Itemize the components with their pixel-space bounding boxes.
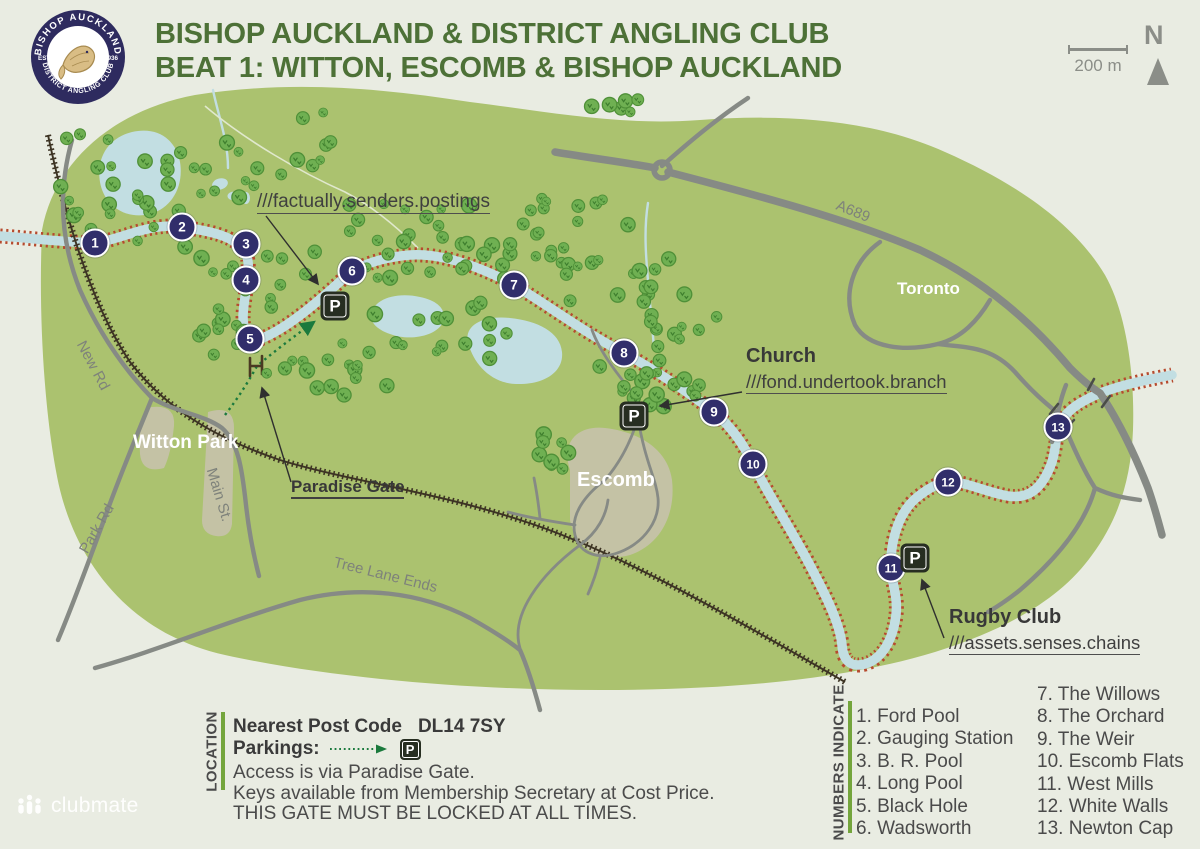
tree-icon: [275, 279, 286, 290]
tree-icon: [662, 252, 676, 266]
tree-icon: [382, 248, 394, 260]
what3words-label: ///assets.senses.chains: [949, 632, 1140, 655]
numbers-legend-title: NUMBERS INDICATE: [831, 691, 848, 841]
numbers-legend-bar: [848, 701, 852, 833]
tree-icon: [649, 264, 660, 275]
tree-icon: [474, 296, 487, 309]
page-title: BISHOP AUCKLAND & DISTRICT ANGLING CLUB …: [155, 17, 842, 85]
river-marker-13: 13: [1044, 413, 1073, 442]
tree-icon: [425, 267, 436, 278]
tree-icon: [194, 250, 209, 265]
tree-icon: [265, 301, 277, 313]
tree-icon: [637, 295, 650, 308]
tree-icon: [625, 107, 635, 117]
tree-icon: [558, 243, 568, 253]
tree-icon: [437, 232, 449, 244]
tree-icon: [74, 129, 85, 140]
legend-item: 7. The Willows: [1037, 684, 1184, 706]
river-marker-4: 4: [232, 266, 261, 295]
north-label: N: [1144, 20, 1164, 51]
tree-icon: [504, 238, 517, 251]
tree-icon: [133, 236, 143, 246]
tree-icon: [209, 268, 218, 277]
tree-icon: [573, 216, 583, 226]
legend-item: 5. Black Hole: [856, 796, 1013, 818]
tree-icon: [630, 387, 642, 399]
tree-icon: [645, 315, 658, 328]
annotation-title: Church: [746, 345, 816, 367]
tree-icon: [296, 112, 309, 125]
scale-bar: [1068, 48, 1128, 51]
tree-icon: [241, 176, 250, 185]
place-label-witton-park: Witton Park: [133, 432, 238, 454]
tree-icon: [308, 245, 321, 258]
postcode-value: DL14 7SY: [418, 716, 506, 737]
tree-icon: [210, 186, 220, 196]
tree-icon: [61, 132, 73, 144]
tree-icon: [234, 147, 243, 156]
tree-icon: [353, 361, 363, 371]
tree-icon: [653, 354, 666, 367]
tree-icon: [350, 373, 361, 384]
tree-icon: [65, 196, 74, 205]
parkings-label: Parkings:: [233, 738, 320, 760]
river-marker-10: 10: [739, 450, 768, 479]
annotation-paradise-gate: Paradise Gate: [291, 477, 404, 497]
legend-item: 10. Escomb Flats: [1037, 751, 1184, 773]
tree-icon: [459, 337, 472, 350]
tree-icon: [675, 334, 685, 344]
tree-icon: [564, 295, 576, 307]
club-logo: BISHOP AUCKLAND DISTRICT ANGLING CLUB ES…: [28, 7, 128, 107]
parking-icon: P: [321, 292, 350, 321]
tree-icon: [373, 273, 382, 282]
tree-icon: [132, 190, 143, 201]
tree-icon: [598, 195, 608, 205]
legend-item: 11. West Mills: [1037, 774, 1184, 796]
tree-icon: [319, 108, 328, 117]
tree-icon: [322, 354, 334, 366]
tree-icon: [677, 322, 686, 331]
tree-icon: [208, 349, 219, 360]
location-note-1: Access is via Paradise Gate.: [233, 762, 475, 784]
annotation-title: Paradise Gate: [291, 477, 404, 499]
tree-icon: [602, 97, 617, 112]
scale-label: 200 m: [1060, 56, 1136, 76]
tree-icon: [290, 153, 305, 168]
tree-icon: [594, 255, 603, 264]
tree-icon: [439, 311, 453, 325]
tree-icon: [413, 314, 425, 326]
tree-icon: [344, 226, 355, 237]
parking-icon: P: [620, 402, 649, 431]
tree-icon: [593, 360, 606, 373]
tree-icon: [477, 247, 491, 261]
tree-icon: [337, 388, 351, 402]
tree-icon: [459, 236, 474, 251]
tree-icon: [644, 280, 658, 294]
tree-icon: [433, 220, 444, 231]
place-label-toronto: Toronto: [897, 279, 960, 299]
tree-icon: [220, 135, 235, 150]
tree-icon: [544, 454, 559, 469]
tree-icon: [621, 218, 635, 232]
tree-icon: [338, 339, 347, 348]
place-label-escomb: Escomb: [577, 469, 655, 492]
tree-icon: [106, 177, 120, 191]
clubmate-label: clubmate: [51, 794, 139, 818]
tree-icon: [545, 250, 557, 262]
tree-icon: [531, 251, 541, 261]
tree-icon: [251, 162, 264, 175]
legend-item: 2. Gauging Station: [856, 728, 1013, 750]
tree-icon: [232, 190, 247, 205]
title-line-1: BISHOP AUCKLAND & DISTRICT ANGLING CLUB: [155, 17, 842, 51]
tree-icon: [652, 341, 664, 353]
tree-icon: [161, 177, 175, 191]
what3words-label: ///factually.senders.postings: [257, 191, 490, 214]
river-marker-3: 3: [232, 230, 261, 259]
tree-icon: [618, 94, 632, 108]
tree-icon: [557, 438, 567, 448]
legend-item: 13. Newton Cap: [1037, 818, 1184, 840]
tree-icon: [197, 189, 206, 198]
tree-icon: [711, 312, 722, 323]
tree-icon: [640, 367, 653, 380]
tree-icon: [278, 362, 291, 375]
tree-icon: [73, 207, 84, 218]
location-note-2: Keys available from Membership Secretary…: [233, 783, 715, 805]
river-marker-8: 8: [610, 339, 639, 368]
tree-icon: [189, 163, 199, 173]
postcode-line: Nearest Post CodeDL14 7SY: [233, 716, 506, 738]
tree-icon: [693, 324, 704, 335]
parkings-line: Parkings: P: [233, 738, 421, 760]
dotted-arrow-icon: [328, 742, 392, 756]
numbers-column-2: 7. The Willows8. The Orchard9. The Weir1…: [1037, 684, 1184, 841]
tree-icon: [398, 341, 407, 350]
legend-item: 3. B. R. Pool: [856, 751, 1013, 773]
river-marker-7: 7: [500, 271, 529, 300]
what3words-label: ///fond.undertook.branch: [746, 371, 947, 394]
tree-icon: [178, 240, 193, 255]
legend-item: 8. The Orchard: [1037, 706, 1184, 728]
tree-icon: [276, 253, 287, 264]
river-marker-2: 2: [168, 213, 197, 242]
tree-icon: [105, 209, 115, 219]
annotation-rugby-club: Rugby Club///assets.senses.chains: [949, 606, 1140, 654]
tree-icon: [537, 436, 550, 449]
tree-icon: [310, 381, 324, 395]
clubmate-icon: [16, 792, 43, 819]
tree-icon: [107, 162, 116, 171]
legend-item: 1. Ford Pool: [856, 706, 1013, 728]
location-legend-title: LOCATION: [204, 707, 221, 797]
tree-icon: [483, 351, 497, 365]
postcode-label: Nearest Post Code: [233, 716, 402, 737]
tree-icon: [103, 135, 113, 145]
logo-est: EST: [38, 55, 50, 62]
annotation-title: Rugby Club: [949, 606, 1061, 628]
north-arrow-icon: [1147, 58, 1169, 85]
tree-icon: [367, 306, 382, 321]
tree-icon: [560, 268, 572, 280]
tree-icon: [197, 324, 210, 337]
tree-icon: [161, 163, 174, 176]
clubmate-logo: clubmate: [16, 792, 139, 819]
legend-item: 12. White Walls: [1037, 796, 1184, 818]
tree-icon: [693, 379, 706, 392]
tree-icon: [352, 213, 365, 226]
tree-icon: [443, 253, 453, 263]
annotation-church: Church///fond.undertook.branch: [746, 345, 947, 393]
tree-icon: [372, 235, 382, 245]
title-line-2: BEAT 1: WITTON, ESCOMB & BISHOP AUCKLAND: [155, 51, 842, 85]
tree-icon: [200, 163, 212, 175]
tree-icon: [501, 328, 512, 339]
tree-icon: [363, 346, 375, 358]
location-legend-bar: [221, 712, 225, 790]
map-poster: 12345678910111213PPPWitton ParkEscombTor…: [0, 0, 1200, 849]
parking-icon: P: [901, 544, 930, 573]
tree-icon: [149, 222, 158, 231]
tree-icon: [573, 262, 582, 271]
legend-item: 9. The Weir: [1037, 729, 1184, 751]
tree-icon: [649, 387, 664, 402]
tree-icon: [396, 234, 410, 248]
legend-item: 6. Wadsworth: [856, 818, 1013, 840]
tree-icon: [213, 324, 224, 335]
terrain-map: [0, 0, 1200, 849]
location-note-3: THIS GATE MUST BE LOCKED AT ALL TIMES.: [233, 803, 637, 825]
tree-icon: [533, 227, 544, 238]
tree-icon: [324, 379, 338, 393]
tree-icon: [484, 334, 496, 346]
parking-icon: P: [400, 739, 421, 760]
tree-icon: [221, 269, 232, 280]
tree-icon: [316, 156, 325, 165]
tree-icon: [542, 197, 551, 206]
tree-icon: [262, 368, 272, 378]
tree-icon: [456, 262, 469, 275]
tree-icon: [677, 287, 692, 302]
numbers-column-1: 1. Ford Pool2. Gauging Station3. B. R. P…: [856, 706, 1013, 840]
legend-item: 4. Long Pool: [856, 773, 1013, 795]
tree-icon: [625, 369, 637, 381]
tree-icon: [572, 200, 585, 213]
river-marker-1: 1: [81, 229, 110, 258]
tree-icon: [482, 317, 496, 331]
landmass: [41, 87, 1133, 690]
river-marker-5: 5: [236, 325, 265, 354]
tree-icon: [383, 270, 398, 285]
tree-icon: [432, 347, 441, 356]
tree-icon: [213, 304, 224, 315]
tree-icon: [380, 379, 394, 393]
river-marker-6: 6: [338, 257, 367, 286]
tree-icon: [261, 250, 273, 262]
tree-icon: [401, 262, 413, 274]
tree-icon: [299, 363, 314, 378]
tree-icon: [618, 381, 630, 393]
tree-icon: [632, 94, 644, 106]
tree-icon: [517, 218, 529, 230]
tree-icon: [175, 147, 187, 159]
tree-icon: [632, 263, 647, 278]
tree-icon: [276, 169, 287, 180]
tree-icon: [324, 136, 336, 148]
tree-icon: [677, 372, 692, 387]
tree-icon: [610, 288, 625, 303]
tree-icon: [525, 205, 536, 216]
tree-icon: [585, 99, 599, 113]
river-marker-9: 9: [700, 398, 729, 427]
river-marker-12: 12: [934, 468, 963, 497]
tree-icon: [91, 161, 105, 175]
annotation-w3w-postings: ///factually.senders.postings: [257, 188, 490, 213]
logo-year: 1936: [104, 55, 119, 62]
tree-icon: [138, 154, 153, 169]
tree-icon: [54, 180, 68, 194]
